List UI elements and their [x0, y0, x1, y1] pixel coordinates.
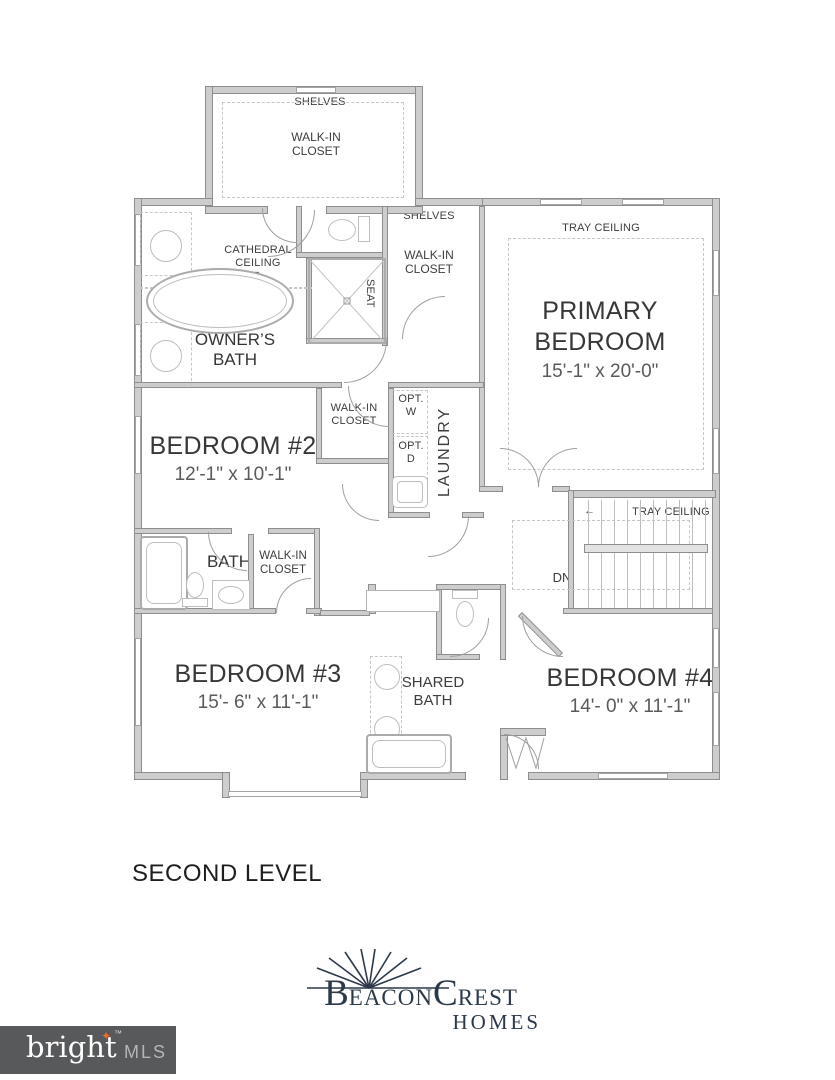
sink-basin — [150, 230, 182, 262]
toilet-bowl — [456, 601, 474, 627]
stair-tread — [679, 500, 680, 608]
sink-basin — [150, 340, 182, 372]
window — [540, 199, 582, 205]
dashed-ceiling-outline — [508, 238, 704, 470]
wall-segment — [205, 206, 268, 214]
vanity-sink — [218, 586, 244, 604]
shared-bath-label: SHARED BATH — [394, 674, 472, 709]
wall-segment — [320, 610, 370, 616]
bathtub-inner — [146, 542, 182, 604]
window — [622, 199, 664, 205]
stair-tread — [627, 500, 628, 608]
stair-tread — [640, 500, 641, 608]
stair-tread — [601, 500, 602, 608]
bedroom4-dims: 14'- 0" x 11'-1" — [534, 696, 726, 718]
floorplan-drawing: SHELVES WALK-IN CLOSET CATHEDRAL CEILING… — [0, 0, 835, 835]
window — [135, 416, 141, 474]
sink-basin — [374, 664, 400, 690]
wall-segment — [314, 528, 320, 616]
wall-segment — [205, 86, 213, 214]
wall-segment — [134, 198, 213, 206]
wall-segment — [388, 512, 430, 518]
dashed-ceiling-outline — [222, 102, 404, 198]
logo-homes: HOMES — [452, 1010, 541, 1035]
tray-ceiling-label-primary: TRAY CEILING — [556, 222, 646, 235]
wall-segment — [479, 206, 485, 492]
trademark-symbol: ™ — [114, 1029, 122, 1038]
bifold-door — [504, 736, 546, 772]
bedroom3-name: BEDROOM #3 — [156, 660, 360, 690]
tray-ceiling-label-stairs: TRAY CEILING — [630, 506, 712, 519]
window — [713, 628, 719, 668]
toilet-bowl — [328, 219, 356, 241]
owners-bath-label: OWNER’S BATH — [183, 330, 287, 370]
toilet-tank — [358, 216, 370, 242]
window — [713, 692, 719, 746]
window — [598, 773, 668, 779]
wall-segment — [316, 388, 322, 464]
bedroom3-dims: 15'- 6" x 11'-1" — [156, 692, 360, 714]
door-arc — [344, 340, 387, 383]
wall-segment — [482, 198, 720, 206]
toilet-bowl — [186, 572, 204, 598]
laundry-label: LAUNDRY — [436, 398, 455, 506]
logo-rest: REST — [458, 985, 518, 1010]
logo-eacon: EACON — [349, 985, 433, 1010]
spark-icon: ✦ — [101, 1029, 111, 1043]
stair-tread — [588, 500, 589, 608]
wall-segment — [388, 382, 484, 388]
wall-segment — [568, 490, 716, 498]
stair-tread — [614, 500, 615, 608]
door-arc — [342, 484, 379, 521]
wall-segment — [415, 86, 423, 214]
window — [296, 87, 336, 93]
wall-segment — [134, 772, 230, 780]
wall-segment — [500, 584, 506, 660]
bedroom4-label: BEDROOM #4 14'- 0" x 11'-1" — [534, 664, 726, 718]
stair-handrail — [584, 544, 708, 553]
wall-segment — [316, 458, 394, 464]
toilet-tank — [452, 590, 478, 599]
walkin-closet-label-b3: WALK-IN CLOSET — [252, 550, 314, 577]
window — [135, 638, 141, 726]
shower-stall — [308, 258, 386, 344]
level-title: SECOND LEVEL — [132, 860, 322, 888]
logo-letter-b: B — [324, 973, 349, 1014]
wall-segment — [563, 608, 713, 614]
stair-tread — [705, 500, 706, 608]
logo-letter-c: C — [433, 973, 458, 1014]
builder-logo: BEACONCREST HOMES — [293, 948, 549, 1044]
bedroom2-name: BEDROOM #2 — [146, 432, 320, 462]
bedroom4-name: BEDROOM #4 — [534, 664, 726, 694]
logo-wordmark: BEACONCREST — [293, 972, 549, 1015]
mls-wordmark: MLS — [124, 1042, 167, 1063]
left-arrow-icon: ← — [584, 506, 595, 517]
freestanding-tub-inner — [153, 274, 287, 328]
window — [713, 250, 719, 296]
wall-segment — [415, 198, 489, 206]
door-arc — [402, 296, 445, 339]
laundry-sink-inner — [397, 481, 423, 503]
floorplan-page: SHELVES WALK-IN CLOSET CATHEDRAL CEILING… — [0, 0, 835, 1080]
wall-segment — [326, 206, 423, 214]
door-arc — [522, 616, 563, 657]
bathtub-inner — [372, 740, 446, 768]
walkin-closet-label-2: WALK-IN CLOSET — [390, 248, 468, 276]
door-arc — [428, 516, 469, 557]
stair-tread — [666, 500, 667, 608]
window — [713, 428, 719, 474]
stair-tread — [653, 500, 654, 608]
door-arc — [276, 578, 311, 613]
toilet-tank — [182, 598, 208, 607]
shelves-box — [366, 590, 440, 612]
window — [228, 791, 362, 797]
bedroom2-label: BEDROOM #2 12'-1" x 10'-1" — [146, 432, 320, 486]
bedroom2-dims: 12'-1" x 10'-1" — [146, 464, 320, 486]
dashed-ceiling-outline — [392, 436, 428, 480]
dashed-ceiling-outline — [392, 390, 428, 434]
bright-mls-watermark: bright ✦ ™ MLS — [0, 1026, 176, 1074]
stair-tread — [692, 500, 693, 608]
bedroom3-label: BEDROOM #3 15'- 6" x 11'-1" — [156, 660, 360, 714]
wall-segment — [268, 528, 320, 534]
